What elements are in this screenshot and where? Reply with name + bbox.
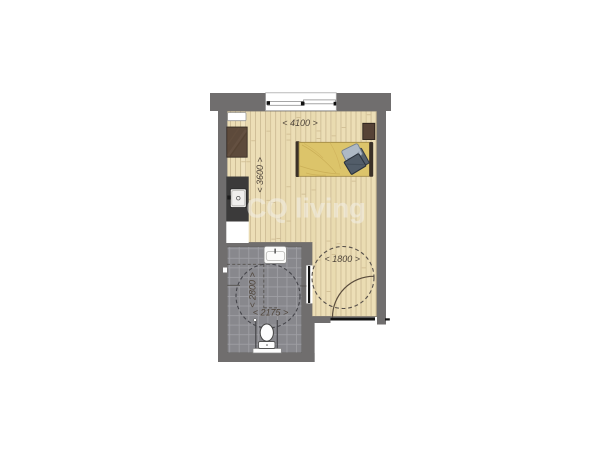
svg-text:< 1800 >: < 1800 >: [325, 254, 361, 264]
svg-text:< 2800 >: < 2800 >: [248, 272, 258, 308]
svg-text:< 2175 >: < 2175 >: [253, 308, 289, 318]
svg-text:< 3600 >: < 3600 >: [255, 157, 265, 193]
svg-text:CQ living: CQ living: [246, 193, 365, 224]
svg-text:< 4100 >: < 4100 >: [282, 118, 318, 128]
